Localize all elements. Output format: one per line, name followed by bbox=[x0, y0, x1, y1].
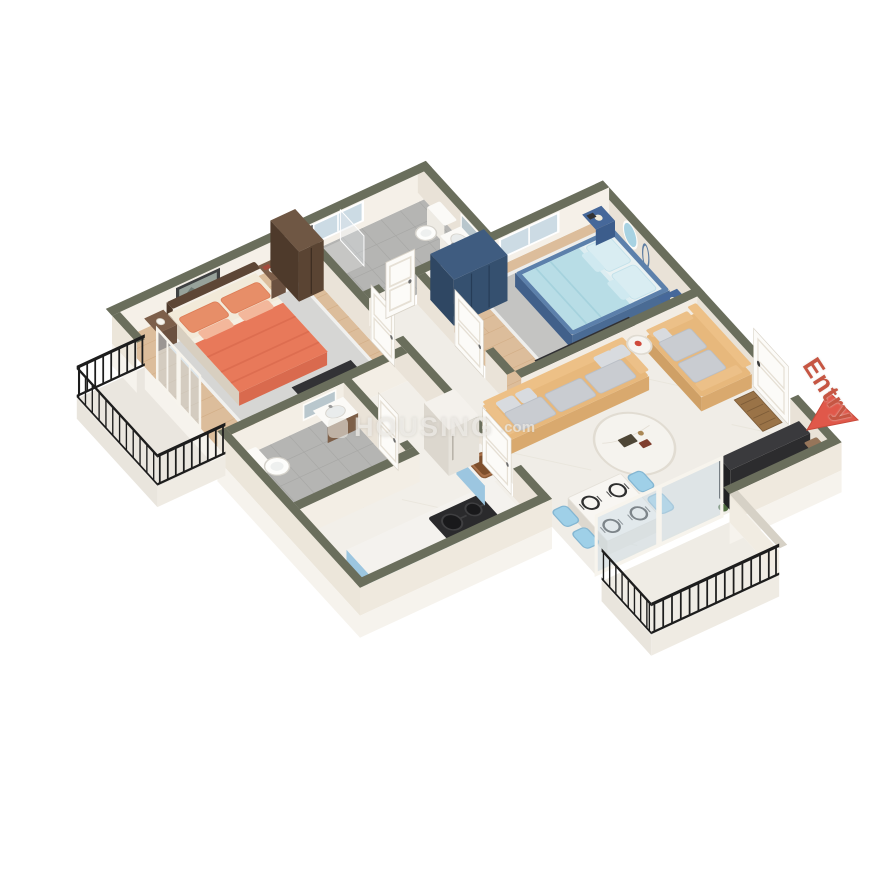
housing-logo-icon bbox=[328, 418, 348, 438]
watermark: HOUSING .com bbox=[328, 412, 535, 443]
watermark-text: HOUSING bbox=[354, 412, 494, 443]
floor-plan-render: HOUSING .com Entry bbox=[0, 0, 870, 870]
watermark-suffix: .com bbox=[500, 419, 535, 436]
